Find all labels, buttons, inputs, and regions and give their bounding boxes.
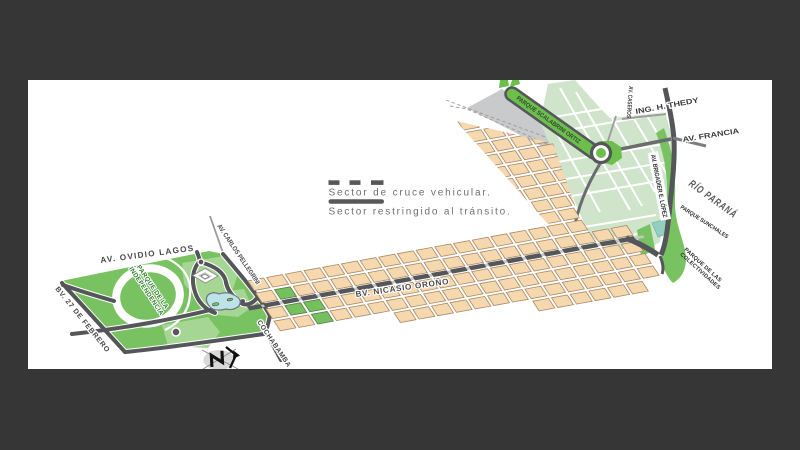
svg-text:Sector restringido al tránsito: Sector restringido al tránsito. (329, 206, 512, 217)
svg-text:Sector de cruce vehicular.: Sector de cruce vehicular. (329, 188, 492, 199)
